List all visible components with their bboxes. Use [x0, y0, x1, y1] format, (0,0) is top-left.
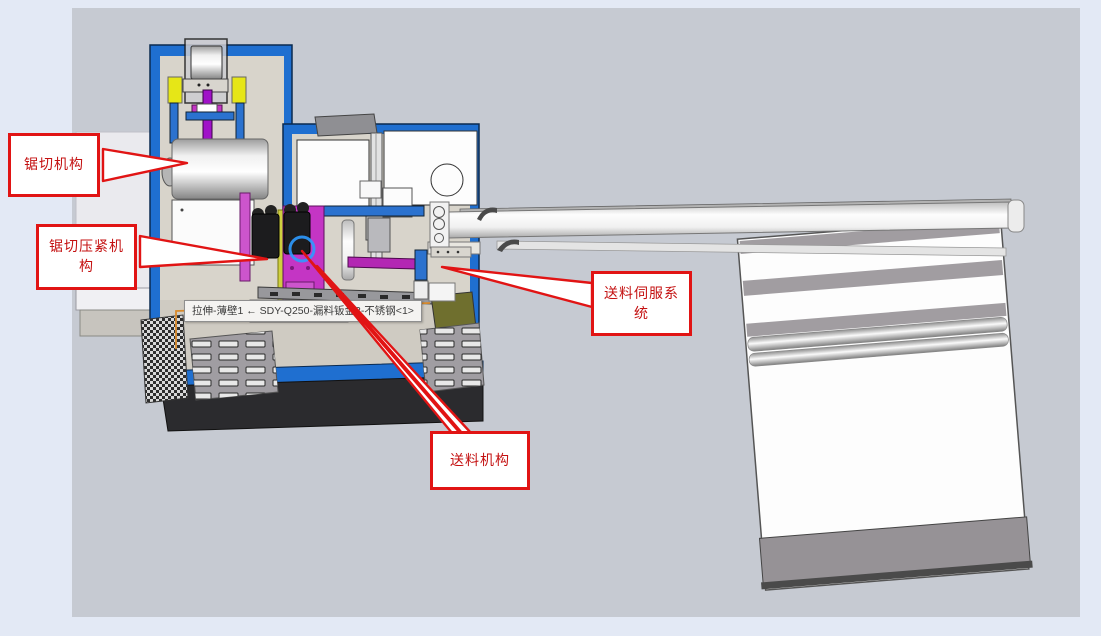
- callout-feed-mechanism[interactable]: 送料机构: [430, 431, 530, 490]
- feature-tooltip: 拉伸-薄壁1 ← SDY-Q250-漏料钣金2-不锈钢<1>: [184, 300, 422, 322]
- callout-label: 送料机构: [450, 451, 510, 471]
- callout-label: 锯切压紧机构: [45, 237, 128, 276]
- callout-label: 送料伺服系统: [600, 284, 683, 323]
- callout-label: 锯切机构: [24, 155, 84, 175]
- cad-window: 拉伸-薄壁1 ← SDY-Q250-漏料钣金2-不锈钢<1> 锯切机构 锯切压紧…: [0, 0, 1101, 636]
- callout-sawing-clamp-mechanism[interactable]: 锯切压紧机构: [36, 224, 137, 290]
- callout-sawing-mechanism[interactable]: 锯切机构: [8, 133, 100, 197]
- callout-feed-servo-system[interactable]: 送料伺服系统: [591, 271, 692, 336]
- machine-model[interactable]: [0, 0, 1101, 636]
- material-rack[interactable]: [733, 218, 1032, 591]
